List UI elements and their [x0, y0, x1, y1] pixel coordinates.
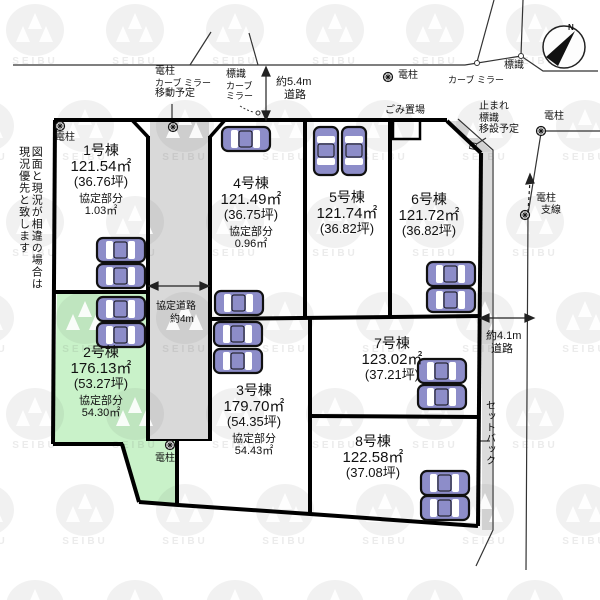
garbage-label: ごみ置場 — [385, 105, 425, 117]
curve-mirror-label: カーブ ミラー — [448, 75, 504, 85]
lot5-label: 5号棟 121.74㎡ (36.82坪) — [317, 190, 378, 237]
lot1-label: 1号棟 121.54㎡ (36.76坪) 協定部分 1.03㎡ — [71, 143, 132, 218]
lot3-label: 3号棟 179.70㎡ (54.35坪) 協定部分 54.43㎡ — [224, 383, 285, 458]
disclaimer-line2: 現況優先と致します — [17, 146, 30, 446]
disclaimer-line1: 図面と現況が相違の場合は — [30, 146, 43, 446]
site-plan: SEIBUSEIBUSEIBUSEIBUSEIBUSEIBUSEIBUSEIBU… — [0, 0, 600, 600]
pole-top-street-label: 電柱 — [398, 70, 418, 82]
pole-right-label: 電柱 — [544, 111, 564, 123]
pole-move-note: 電柱 カーブ ミラー 移動予定 — [155, 66, 211, 99]
disclaimer-note: 図面と現況が相違の場合は 現況優先と致します — [17, 146, 42, 446]
lot4-label: 4号棟 121.49㎡ (36.75坪) 協定部分 0.96㎡ — [221, 176, 282, 251]
pole-road-bottom-label: 電柱 — [155, 453, 175, 465]
pole-top-left-label: 電柱 — [55, 132, 75, 144]
lot2-label: 2号棟 176.13㎡ (53.27坪) 協定部分 54.30㎡ — [71, 345, 132, 420]
road-top-width: 約5.4m — [276, 76, 311, 89]
sign-label: 標識 — [504, 60, 524, 72]
compass-north-label: N — [568, 23, 574, 32]
agreement-road-name: 協定道路 — [156, 301, 196, 313]
lot8-label: 8号棟 122.58㎡ (37.08坪) — [343, 434, 404, 481]
road-right-width: 約4.1m — [486, 330, 521, 343]
sign-mirror-note: 標識 カーブ ミラー — [226, 69, 253, 101]
lot6-label: 6号棟 121.72㎡ (36.82坪) — [399, 192, 460, 239]
pole-guy-label2: 支線 — [541, 205, 561, 217]
road-right-type: 道路 — [491, 343, 513, 356]
road-top-type: 道路 — [284, 89, 306, 102]
lot7-label: 7号棟 123.02㎡ (37.21坪) — [362, 336, 423, 383]
pole-guy-label1: 電柱 — [536, 193, 556, 205]
setback-label: セットバック — [483, 400, 495, 490]
agreement-road-width: 約4m — [170, 314, 194, 326]
stop-sign-note: 止まれ 標識 移設予定 — [479, 101, 519, 136]
